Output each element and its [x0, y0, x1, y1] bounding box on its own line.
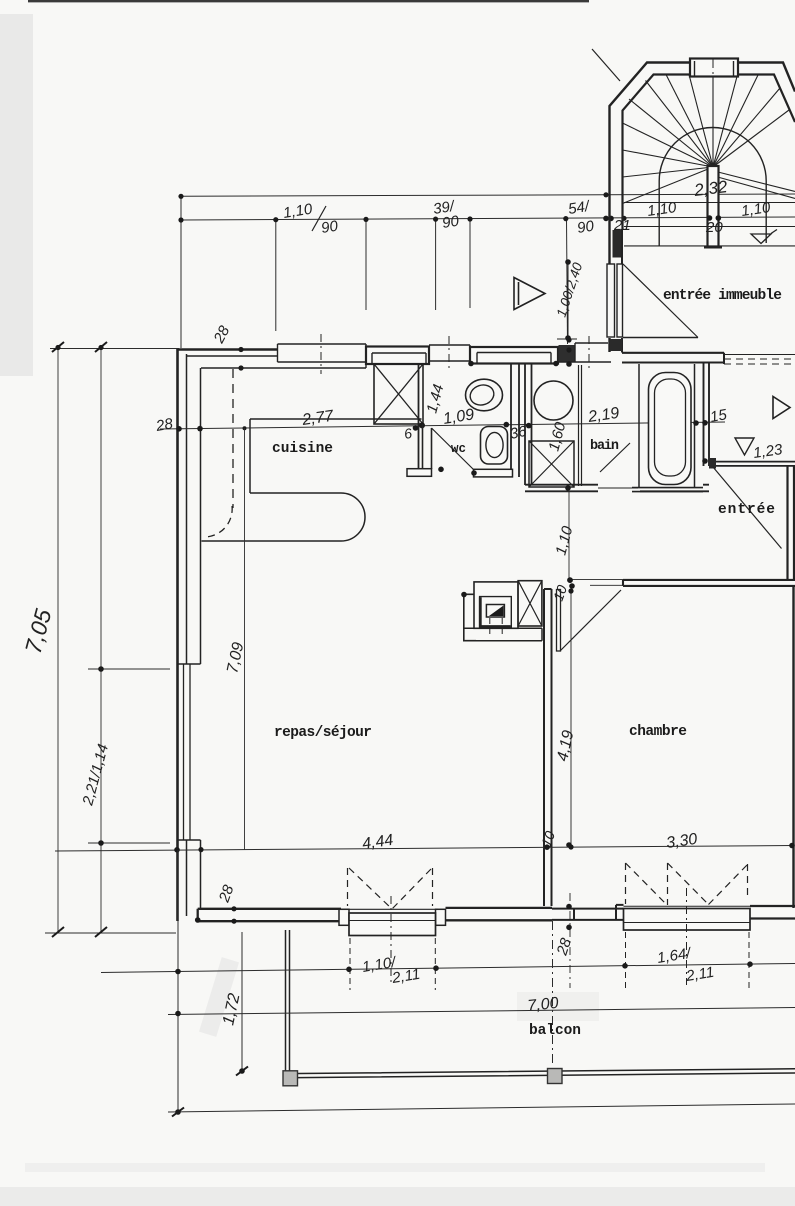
svg-text:repas/séjour: repas/séjour: [274, 725, 372, 741]
svg-text:chambre: chambre: [629, 724, 687, 740]
svg-text:entrée: entrée: [718, 502, 775, 518]
svg-text:balcon: balcon: [529, 1023, 581, 1039]
svg-text:7,00: 7,00: [527, 995, 560, 1015]
svg-text:90: 90: [441, 212, 461, 232]
svg-text:cuisine: cuisine: [272, 441, 333, 457]
svg-text:28: 28: [154, 415, 175, 435]
svg-text:bain: bain: [590, 439, 619, 454]
svg-text:wc: wc: [451, 442, 466, 456]
svg-text:90: 90: [576, 217, 596, 237]
svg-text:entrée immeuble: entrée immeuble: [663, 288, 782, 304]
svg-text:20: 20: [705, 219, 723, 236]
svg-text:90: 90: [320, 217, 340, 237]
